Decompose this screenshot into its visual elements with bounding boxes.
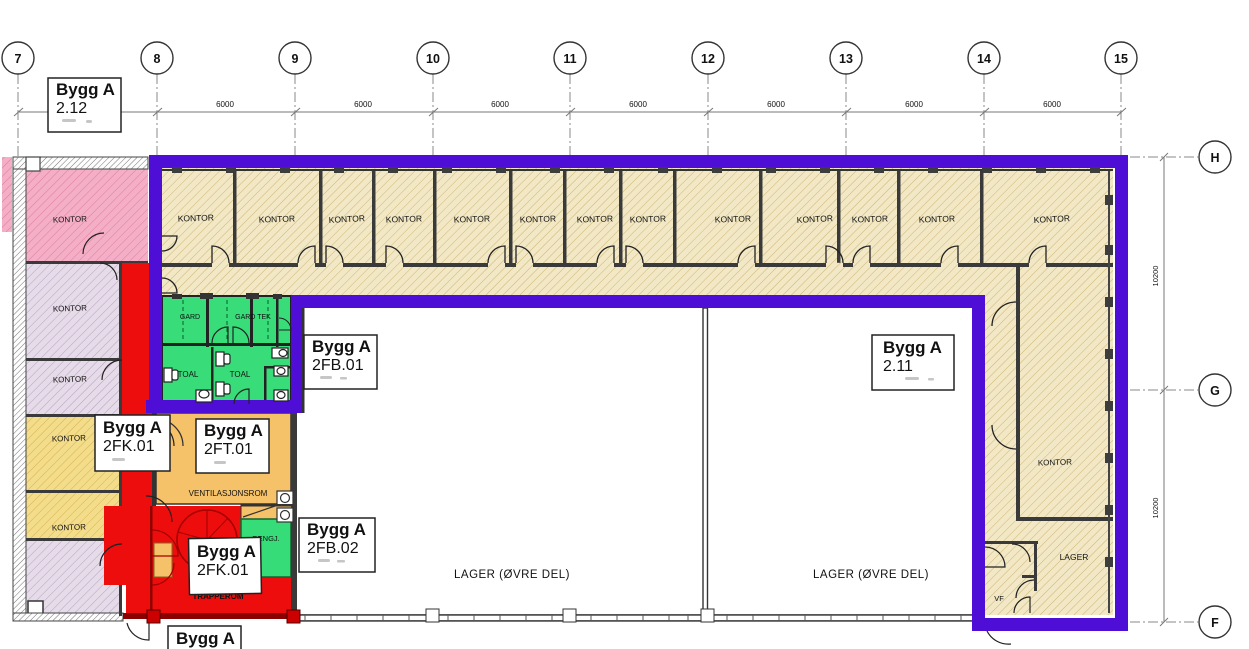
svg-text:2.11: 2.11 (883, 358, 913, 375)
svg-text:Bygg A: Bygg A (312, 337, 371, 356)
svg-text:KONTOR: KONTOR (1038, 457, 1073, 467)
svg-text:Bygg A: Bygg A (176, 629, 235, 648)
svg-text:LAGER: LAGER (1060, 552, 1089, 562)
svg-text:F: F (1211, 616, 1219, 630)
svg-text:KONTOR: KONTOR (919, 213, 956, 224)
svg-text:KONTOR: KONTOR (259, 213, 296, 224)
svg-text:2FB.02: 2FB.02 (307, 540, 359, 557)
svg-text:6000: 6000 (491, 100, 509, 109)
svg-text:Bygg A: Bygg A (307, 520, 366, 539)
svg-text:2.12: 2.12 (56, 100, 87, 117)
svg-text:G: G (1210, 384, 1220, 398)
svg-text:KONTOR: KONTOR (852, 213, 889, 224)
svg-text:12: 12 (701, 52, 715, 66)
svg-text:6000: 6000 (767, 100, 785, 109)
svg-text:10200: 10200 (1151, 498, 1160, 519)
svg-text:11: 11 (563, 52, 576, 66)
svg-text:2FB.01: 2FB.01 (312, 357, 364, 374)
svg-text:KONTOR: KONTOR (454, 213, 491, 224)
svg-text:9: 9 (292, 52, 299, 66)
svg-text:10200: 10200 (1151, 266, 1160, 287)
svg-text:TOAL: TOAL (178, 370, 199, 379)
svg-text:Bygg A: Bygg A (56, 80, 115, 99)
svg-text:LAGER (ØVRE DEL): LAGER (ØVRE DEL) (813, 569, 929, 581)
svg-text:VENTILASJONSROM: VENTILASJONSROM (189, 489, 268, 498)
svg-text:Bygg A: Bygg A (204, 421, 263, 440)
svg-text:KONTOR: KONTOR (52, 522, 87, 532)
svg-text:KONTOR: KONTOR (178, 212, 215, 223)
svg-text:TOAL: TOAL (230, 370, 251, 379)
svg-text:10: 10 (426, 52, 440, 66)
svg-text:KONTOR: KONTOR (386, 213, 423, 224)
svg-text:KONTOR: KONTOR (577, 213, 614, 224)
svg-text:2FK.01: 2FK.01 (103, 438, 155, 455)
svg-text:H: H (1210, 151, 1219, 165)
svg-text:7: 7 (15, 52, 22, 66)
svg-text:14: 14 (977, 52, 991, 66)
svg-text:KONTOR: KONTOR (1033, 213, 1070, 225)
svg-text:KONTOR: KONTOR (715, 213, 752, 224)
svg-text:KONTOR: KONTOR (328, 213, 365, 225)
svg-text:2FT.01: 2FT.01 (204, 441, 253, 458)
svg-text:VF: VF (994, 594, 1004, 603)
svg-text:13: 13 (839, 52, 853, 66)
svg-text:KONTOR: KONTOR (52, 433, 87, 443)
svg-text:2FK.01: 2FK.01 (197, 562, 249, 579)
svg-text:KONTOR: KONTOR (520, 213, 557, 224)
svg-text:6000: 6000 (629, 100, 647, 109)
svg-text:6000: 6000 (354, 100, 372, 109)
svg-text:KONTOR: KONTOR (630, 213, 667, 224)
svg-text:8: 8 (154, 52, 161, 66)
svg-text:6000: 6000 (1043, 100, 1061, 109)
svg-text:15: 15 (1114, 52, 1128, 66)
svg-text:KONTOR: KONTOR (53, 374, 88, 384)
svg-text:KONTOR: KONTOR (53, 214, 88, 224)
svg-text:LAGER (ØVRE DEL): LAGER (ØVRE DEL) (454, 569, 570, 581)
svg-text:6000: 6000 (905, 100, 923, 109)
svg-text:Bygg A: Bygg A (197, 542, 256, 561)
svg-text:KONTOR: KONTOR (796, 213, 833, 225)
svg-text:GARD TEK: GARD TEK (235, 314, 271, 321)
svg-text:6000: 6000 (216, 100, 234, 109)
svg-text:Bygg A: Bygg A (883, 338, 942, 357)
svg-text:KONTOR: KONTOR (53, 303, 88, 313)
svg-text:Bygg A: Bygg A (103, 418, 162, 437)
